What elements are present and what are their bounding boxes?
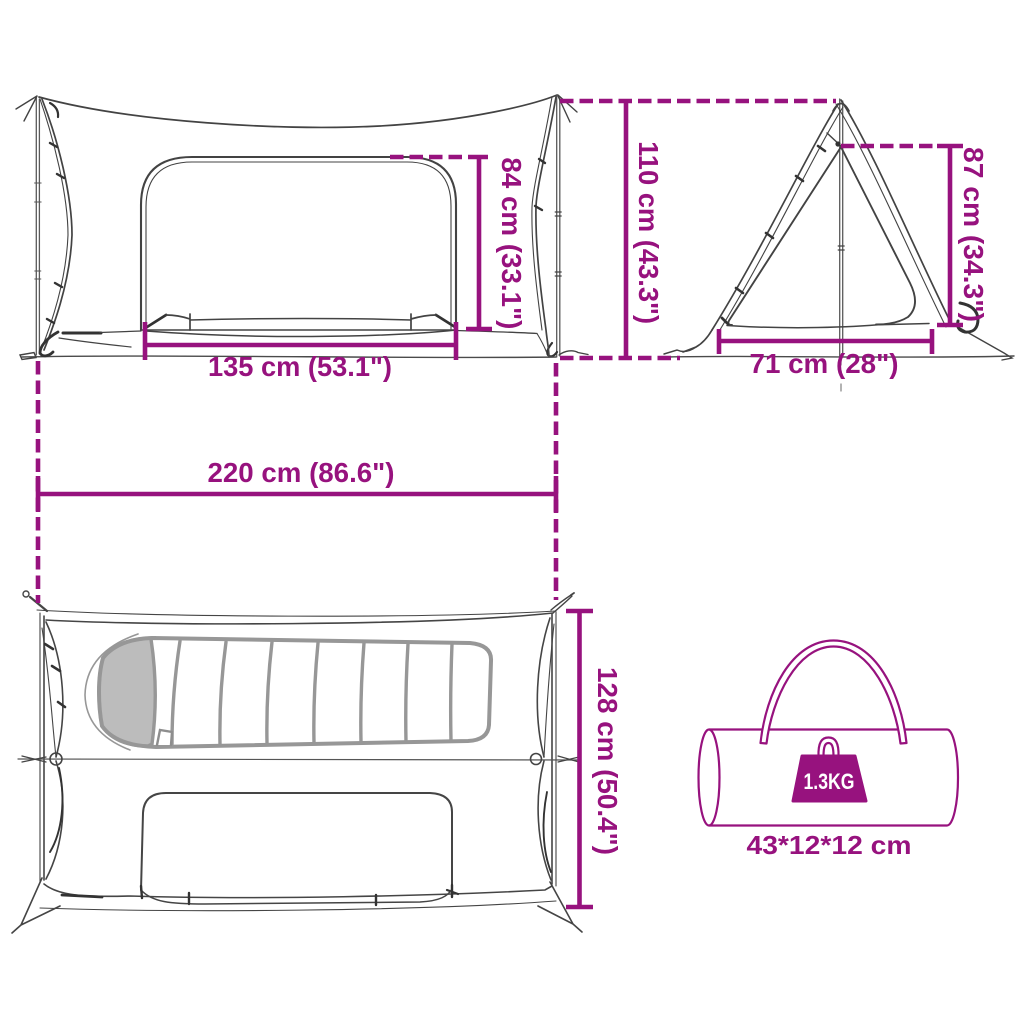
svg-text:135 cm (53.1"): 135 cm (53.1") xyxy=(208,351,392,382)
svg-text:110 cm (43.3"): 110 cm (43.3") xyxy=(633,141,664,324)
svg-text:1.3KG: 1.3KG xyxy=(804,769,855,794)
svg-text:87 cm (34.3"): 87 cm (34.3") xyxy=(958,147,989,322)
svg-text:220 cm (86.6"): 220 cm (86.6") xyxy=(208,457,395,488)
svg-text:128 cm (50.4"): 128 cm (50.4") xyxy=(592,667,623,855)
svg-text:84 cm (33.1"): 84 cm (33.1") xyxy=(496,157,527,329)
svg-text:71 cm (28"): 71 cm (28") xyxy=(750,348,899,379)
svg-text:43*12*12 cm: 43*12*12 cm xyxy=(747,830,912,860)
